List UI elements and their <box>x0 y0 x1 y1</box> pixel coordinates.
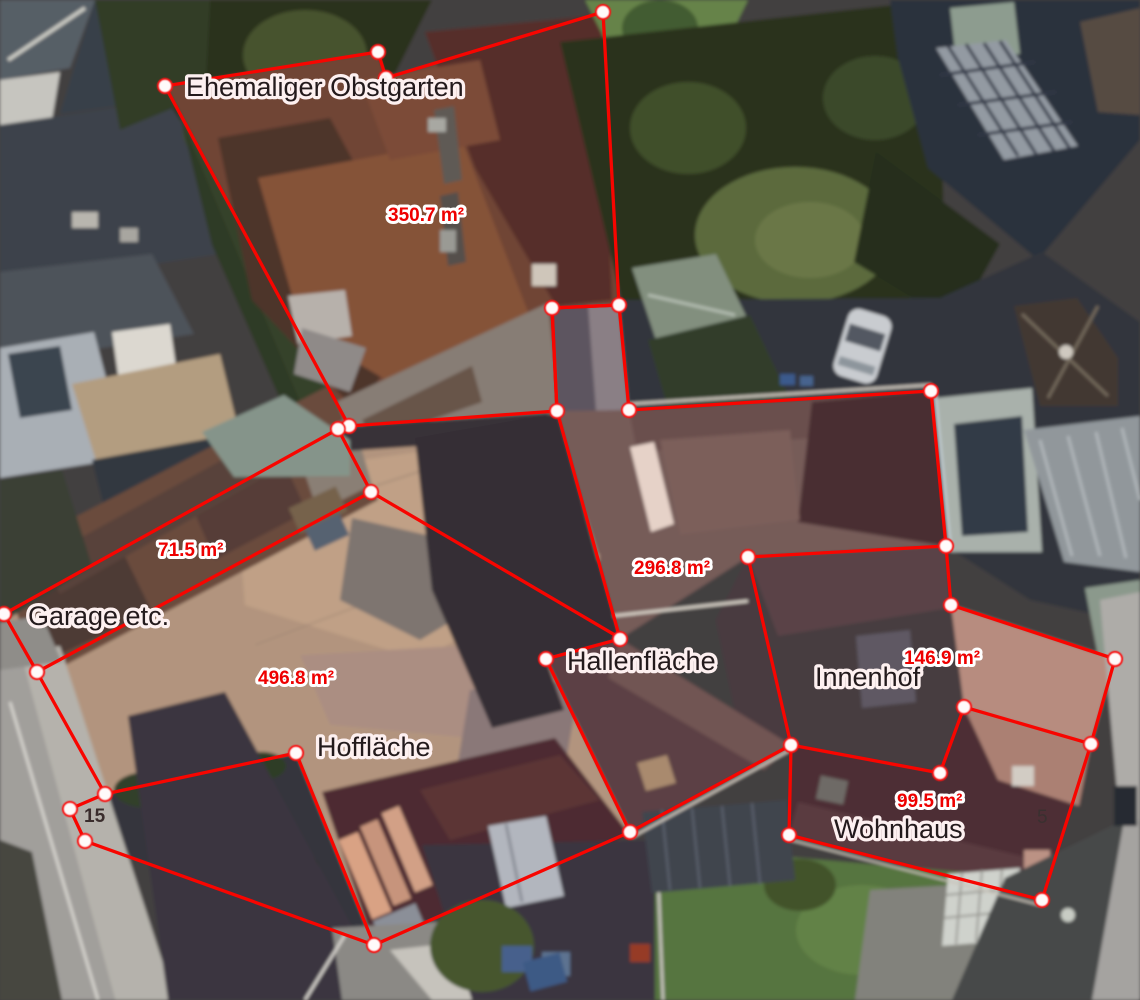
svg-text:Wohnhaus: Wohnhaus <box>834 814 963 844</box>
svg-text:Garage etc.: Garage etc. <box>28 601 169 631</box>
svg-text:350.7 m²: 350.7 m² <box>388 205 464 226</box>
svg-text:Ehemaliger Obstgarten: Ehemaliger Obstgarten <box>186 72 464 102</box>
svg-text:496.8 m²: 496.8 m² <box>258 668 334 689</box>
svg-text:296.8 m²: 296.8 m² <box>634 558 710 579</box>
svg-text:71.5 m²: 71.5 m² <box>158 540 223 561</box>
svg-text:Hallenfläche: Hallenfläche <box>567 646 716 676</box>
svg-text:15: 15 <box>84 806 106 827</box>
svg-text:Innenhof: Innenhof <box>815 662 921 692</box>
svg-text:5: 5 <box>1037 807 1048 828</box>
svg-text:Hoffläche: Hoffläche <box>317 732 431 762</box>
svg-text:99.5 m²: 99.5 m² <box>897 791 962 812</box>
